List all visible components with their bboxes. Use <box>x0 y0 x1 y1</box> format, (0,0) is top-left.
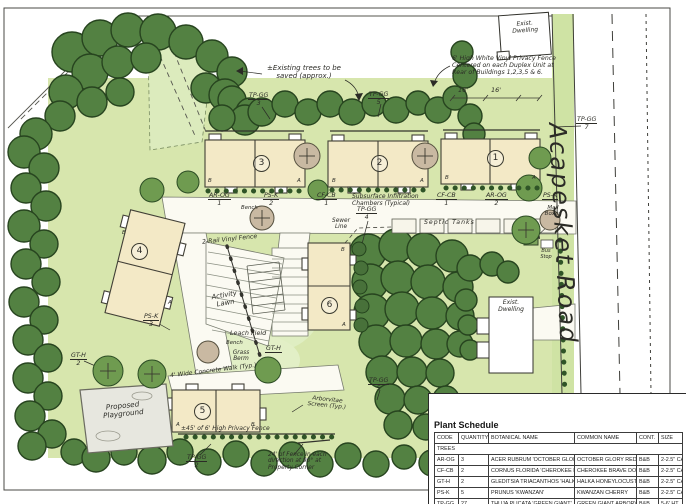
building-2-unit-b: B <box>332 178 336 184</box>
cell-qty: 3 <box>459 455 489 466</box>
callout-ar-og-1: AR-OG 1 <box>208 192 231 207</box>
callout-code: TP-GG <box>248 92 269 100</box>
building-5-unit-a: A <box>176 422 180 428</box>
cell-botanical: GLEDITSIA TRIACANTHOS 'HALKA' <box>489 477 575 488</box>
schedule-section-row: TREES <box>435 444 683 455</box>
plant-schedule-title: Plant Schedule <box>434 420 686 430</box>
bus-stop-label: Bus Stop <box>538 249 554 260</box>
cell-common: GREEN GIANT ARBORVITAE <box>575 499 637 504</box>
schedule-row: GT-H 2 GLEDITSIA TRIACANTHOS 'HALKA' HAL… <box>435 477 683 488</box>
callout-tp-gg-bottom-center: TP-GG 5 <box>368 377 389 392</box>
callout-qty: 2 <box>485 200 508 207</box>
cell-code: CF-CB <box>435 466 459 477</box>
schedule-header-row: CODE QUANTITY BOTANICAL NAME COMMON NAME… <box>435 433 683 444</box>
header-botanical: BOTANICAL NAME <box>489 433 575 444</box>
cell-qty: 2 <box>459 466 489 477</box>
bench-leach-label: Bench <box>226 340 243 346</box>
cell-size: 2-2.5" CAL. <box>659 488 683 499</box>
callout-code: AR-OG <box>485 192 508 200</box>
cell-code: PS-K <box>435 488 459 499</box>
building-5-number: 5 <box>194 403 211 420</box>
callout-code: PS-K <box>143 313 159 321</box>
cell-common: HALKA HONEYLOCUST <box>575 477 637 488</box>
schedule-row: AR-OG 3 ACER RUBRUM 'OCTOBER GLORY' OCTO… <box>435 455 683 466</box>
callout-tp-gg-top-left: TP-GG 3 <box>248 92 269 107</box>
cell-botanical: CORNUS FLORIDA 'CHEROKEE BRAVE' <box>489 466 575 477</box>
cell-common: OCTOBER GLORY RED MAPLE <box>575 455 637 466</box>
callout-tp-gg-top-right: TP-GG 5 <box>368 91 389 106</box>
cell-botanical: ACER RUBRUM 'OCTOBER GLORY' <box>489 455 575 466</box>
callout-qty: 2 <box>263 200 279 207</box>
callout-ps-k-2: PS-K 2 <box>263 192 279 207</box>
schedule-row: PS-K 5 PRUNUS 'KWANZAN' KWANZAN CHERRY B… <box>435 488 683 499</box>
dim-16-a: 16' <box>458 87 468 94</box>
building-3-unit-a: A <box>297 178 301 184</box>
note-privacy-fence: 6' High White Vinyl Privacy Fence Center… <box>452 56 562 77</box>
building-3-unit-b: B <box>208 178 212 184</box>
cell-botanical: THUJA PLICATA 'GREEN GIANT' <box>489 499 575 504</box>
header-common: COMMON NAME <box>575 433 637 444</box>
building-1-number: 1 <box>487 150 504 167</box>
callout-gt-h-2: GT-H 2 <box>70 352 87 367</box>
plant-schedule-panel: Plant Schedule CODE QUANTITY BOTANICAL N… <box>428 393 686 504</box>
building-6-number: 6 <box>321 297 338 314</box>
cell-size: 5-6' HT. <box>659 499 683 504</box>
schedule-row: CF-CB 2 CORNUS FLORIDA 'CHEROKEE BRAVE' … <box>435 466 683 477</box>
cell-common: KWANZAN CHERRY <box>575 488 637 499</box>
cell-cont: B&B <box>637 488 659 499</box>
corner-fence-note: 24' of Fence in each direction at 90° at… <box>268 452 342 471</box>
building-6-unit-b: B <box>341 247 345 253</box>
building-2-number: 2 <box>371 155 388 172</box>
grass-berm-label: Grass Berm <box>228 350 254 363</box>
building-4-unit-a: A <box>168 300 172 306</box>
building-1-unit-b: B <box>445 175 449 181</box>
cell-size: 2-2.5" CAL. <box>659 466 683 477</box>
callout-code: CF-CB <box>316 192 337 200</box>
callout-tp-gg-center: TP-GG 4 <box>356 206 377 221</box>
section-label: TREES <box>435 444 683 455</box>
callout-code: PS-K <box>263 192 279 200</box>
building-3-number: 3 <box>253 155 270 172</box>
header-code: CODE <box>435 433 459 444</box>
building-4-number: 4 <box>131 243 148 260</box>
callout-qty: 1 <box>208 200 231 207</box>
cell-cont: B&B <box>637 466 659 477</box>
callout-qty: 3 <box>248 100 269 107</box>
callout-code: PS-K <box>542 192 558 200</box>
callout-cf-cb-1: CF-CB 1 <box>316 192 337 207</box>
callout-code: GT-H <box>70 352 87 360</box>
callout-qty: 4 <box>356 214 377 221</box>
callout-code: TP-GG <box>576 116 597 124</box>
header-cont: CONT. <box>637 433 659 444</box>
callout-ps-k-3: PS-K 3 <box>143 313 159 328</box>
sewer-line-label: Sewer Line <box>330 218 352 231</box>
callout-cf-cb-2: CF-CB 1 <box>436 192 457 207</box>
mail-boxes-label: Mail Boxes <box>541 205 565 217</box>
callout-qty: 2 <box>70 360 87 367</box>
callout-ar-og-2: AR-OG 2 <box>485 192 508 207</box>
callout-tp-gg-bottom-left: TP-GG 2 <box>186 454 207 469</box>
privacy-fence-b5-label: ±45' of 6' High Privacy Fence <box>181 426 270 433</box>
building-1-unit-a: A <box>532 175 536 181</box>
cell-size: 2-2.5" CAL. <box>659 455 683 466</box>
septic-tanks-label: Septic Tanks <box>424 220 482 227</box>
cell-cont: B&B <box>637 499 659 504</box>
site-plan-sheet: ±Existing trees to be saved (approx.) 6'… <box>0 0 686 504</box>
cell-cont: B&B <box>637 455 659 466</box>
callout-code: CF-CB <box>436 192 457 200</box>
callout-qty: 2 <box>186 462 207 469</box>
building-2-unit-a: A <box>420 178 424 184</box>
callout-code: GT-H <box>265 345 282 353</box>
cell-size: 2-2.5" CAL. <box>659 477 683 488</box>
exist-dwelling-right-label: Exist. Dwelling <box>496 300 526 313</box>
dim-16-b: 16' <box>491 87 501 94</box>
cell-code: GT-H <box>435 477 459 488</box>
note-existing-trees: ±Existing trees to be saved (approx.) <box>258 65 350 81</box>
cell-code: TP-GG <box>435 499 459 504</box>
callout-qty: 5 <box>368 385 389 392</box>
exist-dwelling-top-label: Exist. Dwelling <box>505 20 546 36</box>
building-6 <box>302 243 356 330</box>
cell-code: AR-OG <box>435 455 459 466</box>
callout-code: TP-GG <box>368 91 389 99</box>
callout-code: TP-GG <box>186 454 207 462</box>
plant-schedule-table: CODE QUANTITY BOTANICAL NAME COMMON NAME… <box>434 432 683 504</box>
building-4-unit-b: B <box>122 230 126 236</box>
cell-common: CHEROKEE BRAVE DOGWOOD <box>575 466 637 477</box>
callout-qty: 3 <box>143 321 159 328</box>
cell-qty: 27 <box>459 499 489 504</box>
callout-gt-h: GT-H <box>265 345 282 353</box>
building-6-unit-a: A <box>342 322 346 328</box>
callout-tp-gg-road: TP-GG 7 <box>576 116 597 131</box>
callout-ps-k-mail: PS-K <box>542 192 558 200</box>
callout-qty: 5 <box>368 99 389 106</box>
leach-field-label: Leach Field <box>230 330 266 337</box>
callout-qty: 1 <box>436 200 457 207</box>
callout-qty: 7 <box>576 124 597 131</box>
cell-cont: B&B <box>637 477 659 488</box>
building-5-unit-b: B <box>251 422 255 428</box>
cell-qty: 2 <box>459 477 489 488</box>
cell-botanical: PRUNUS 'KWANZAN' <box>489 488 575 499</box>
header-quantity: QUANTITY <box>459 433 489 444</box>
cell-qty: 5 <box>459 488 489 499</box>
callout-code: TP-GG <box>356 206 377 214</box>
callout-code: TP-GG <box>368 377 389 385</box>
schedule-row: TP-GG 27 THUJA PLICATA 'GREEN GIANT' GRE… <box>435 499 683 504</box>
callout-qty: 1 <box>316 200 337 207</box>
bench-front-label: Bench <box>241 205 258 211</box>
header-size: SIZE <box>659 433 683 444</box>
callout-code: AR-OG <box>208 192 231 200</box>
